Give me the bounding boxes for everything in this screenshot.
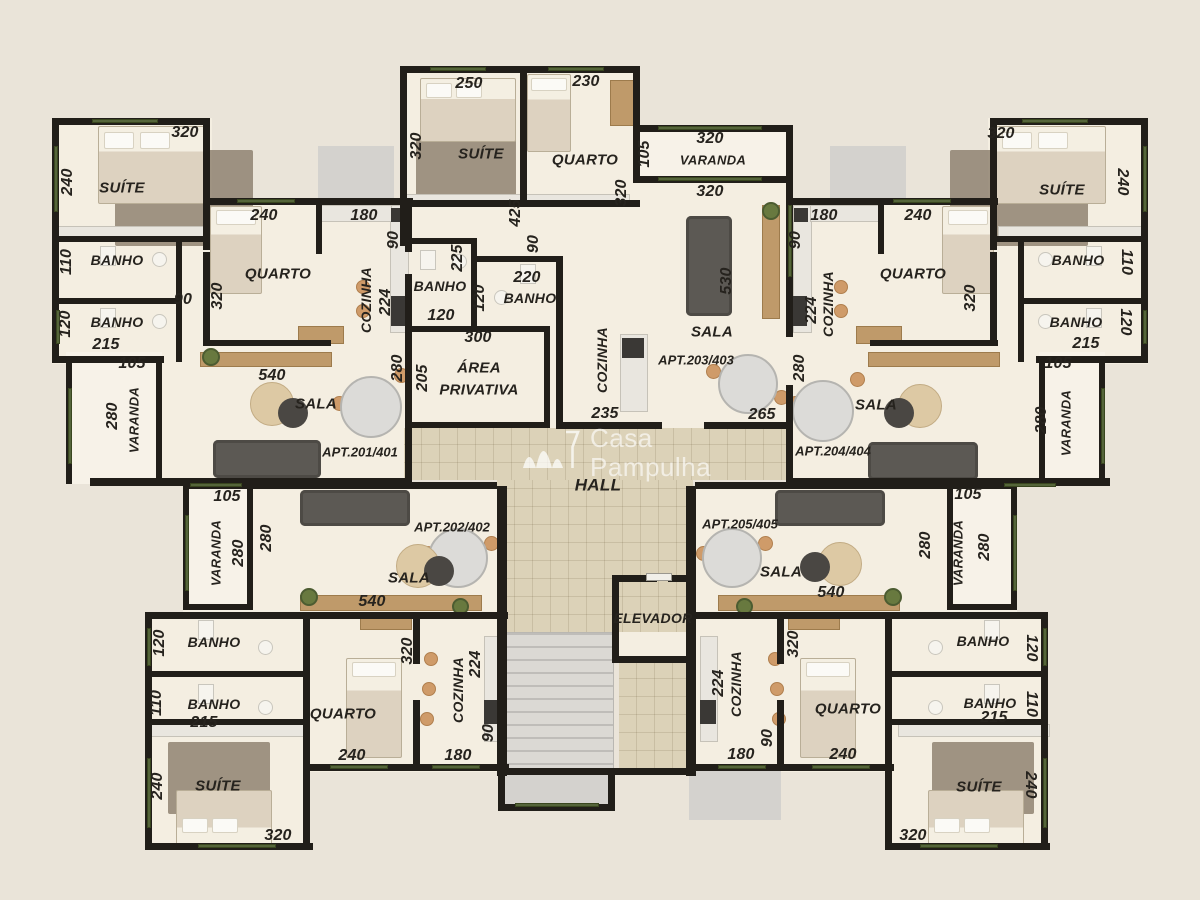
- dimension-label: 320: [614, 179, 630, 206]
- floor-plan-canvas: 320240SUÍTEBANHO110BANHO12021510590VARAN…: [0, 0, 1200, 900]
- shelf: [610, 80, 634, 126]
- dimension-label: 540: [817, 585, 844, 601]
- room-label: BANHO: [91, 253, 144, 267]
- watermark: Casa Pampulha: [522, 424, 711, 481]
- wall: [52, 298, 182, 304]
- window: [1022, 119, 1088, 123]
- dimension-label: 110: [1118, 249, 1134, 275]
- dimension-label: 110: [59, 249, 75, 275]
- pillow: [934, 818, 960, 833]
- room-label: VARANDA: [210, 520, 223, 586]
- dimension-label: 320: [987, 126, 1014, 142]
- wall: [690, 612, 890, 619]
- pillow: [352, 662, 396, 677]
- dimension-label: 280: [259, 524, 275, 551]
- room-label: SUÍTE: [195, 779, 241, 794]
- service-shaft: [830, 146, 906, 204]
- dimension-label: 180: [350, 208, 377, 224]
- pillow: [104, 132, 134, 149]
- dimension-label: 320: [400, 637, 416, 664]
- dimension-label: 280: [231, 539, 247, 566]
- dimension-label: 240: [338, 748, 365, 764]
- dimension-label: 120: [427, 308, 454, 324]
- dimension-label: 240: [904, 208, 931, 224]
- room-label: BANHO: [188, 697, 241, 711]
- dimension-label: 105: [954, 487, 981, 503]
- fix c: [928, 640, 943, 655]
- window: [548, 67, 604, 71]
- dimension-label: 105: [1044, 356, 1071, 372]
- dimension-label: 90: [788, 231, 804, 249]
- dimension-label: 240: [1022, 771, 1038, 798]
- watermark-logo-icon: [522, 426, 580, 479]
- dimension-label: 300: [464, 330, 491, 346]
- room-label: COZINHA: [729, 651, 743, 717]
- window: [658, 177, 762, 181]
- wall: [1018, 242, 1024, 362]
- service-shaft: [318, 146, 394, 204]
- sofa: [300, 490, 410, 526]
- wall: [890, 671, 1048, 677]
- apartment-label: APT.204/404: [795, 445, 871, 458]
- window: [190, 483, 242, 487]
- dimension-label: 120: [1117, 308, 1133, 335]
- room-label: SALA: [760, 565, 802, 580]
- dimension-label: 215: [92, 337, 119, 353]
- dimension-label: 90: [174, 292, 192, 308]
- pillow: [182, 818, 208, 833]
- room-label: BANHO: [964, 696, 1017, 710]
- room-label: BANHO: [504, 291, 557, 305]
- wall: [145, 612, 307, 619]
- dimension-label: 240: [150, 772, 166, 799]
- wall: [477, 256, 562, 262]
- window: [718, 765, 766, 769]
- room-label: SALA: [388, 571, 430, 586]
- dimension-label: 180: [810, 208, 837, 224]
- room-label: BANHO: [1052, 253, 1105, 267]
- sofa: [213, 440, 321, 478]
- room-label: SUÍTE: [458, 147, 504, 162]
- dimension-label: 235: [591, 406, 618, 422]
- fix c: [928, 700, 943, 715]
- bath-fixture: [420, 250, 436, 270]
- dimension-label: 90: [481, 724, 497, 742]
- wall: [786, 385, 793, 486]
- dimension-label: 240: [1114, 168, 1130, 195]
- dining-table: [702, 528, 762, 588]
- staircase: [502, 632, 614, 770]
- room-label: PRIVATIVA: [439, 383, 518, 398]
- dimension-label: 240: [250, 208, 277, 224]
- dimension-label: 320: [264, 828, 291, 844]
- dining-table: [340, 376, 402, 438]
- room-label: SUÍTE: [99, 181, 145, 196]
- dimension-label: 265: [748, 407, 775, 423]
- service-shaft: [505, 775, 608, 806]
- hall-floor: [619, 663, 686, 768]
- watermark-line1: Casa: [590, 423, 653, 453]
- wall: [413, 700, 420, 771]
- room-label: QUARTO: [310, 707, 376, 722]
- fix c: [258, 640, 273, 655]
- sofa: [686, 216, 732, 316]
- room-label: QUARTO: [880, 267, 946, 282]
- dimension-label: 120: [472, 284, 488, 311]
- dimension-label: 540: [358, 594, 385, 610]
- dimension-label: 105: [637, 140, 653, 167]
- dimension-label: 90: [526, 235, 542, 253]
- room-label: SALA: [691, 325, 733, 340]
- window: [515, 803, 599, 807]
- wall: [156, 363, 162, 484]
- window: [92, 119, 158, 123]
- dimension-label: 90: [386, 231, 402, 249]
- dimension-label: 320: [171, 125, 198, 141]
- chair: [422, 682, 436, 696]
- wall: [303, 612, 508, 619]
- room-label: QUARTO: [245, 267, 311, 282]
- dimension-label: 205: [415, 364, 431, 391]
- dimension-label: 320: [696, 131, 723, 147]
- dimension-label: 224: [378, 288, 394, 315]
- wall: [203, 340, 331, 346]
- shelf: [762, 205, 780, 319]
- counter: [150, 724, 304, 737]
- room-label: SUÍTE: [1039, 183, 1085, 198]
- window: [198, 844, 276, 848]
- chair: [770, 682, 784, 696]
- wall: [612, 656, 693, 663]
- room-label: VARANDA: [128, 387, 141, 453]
- apartment-label: APT.202/402: [414, 521, 490, 534]
- window: [1004, 483, 1056, 487]
- dimension-label: 280: [1034, 406, 1050, 433]
- wall: [544, 332, 550, 428]
- wall: [407, 238, 477, 244]
- room-label: VARANDA: [952, 520, 965, 586]
- window: [920, 844, 998, 848]
- apartment-label: APT.201/401: [322, 446, 398, 459]
- pillow: [1038, 132, 1068, 149]
- dimension-label: 280: [105, 402, 121, 429]
- wall: [405, 274, 412, 486]
- window: [330, 765, 388, 769]
- watermark-line2: Pampulha: [590, 452, 711, 482]
- dimension-label: 110: [1023, 691, 1039, 717]
- wall: [890, 612, 1048, 619]
- coffee-table: [800, 552, 830, 582]
- wall: [786, 198, 998, 205]
- window: [237, 199, 295, 203]
- wall: [992, 236, 1148, 242]
- watermark-text: Casa Pampulha: [590, 424, 711, 481]
- wall: [777, 616, 784, 664]
- window: [54, 146, 58, 212]
- room-label: BANHO: [188, 635, 241, 649]
- dimension-label: 120: [152, 629, 168, 656]
- appliance: [622, 338, 644, 358]
- dimension-label: 215: [1072, 336, 1099, 352]
- wall: [686, 486, 696, 776]
- sofa: [775, 490, 885, 526]
- wall: [1018, 298, 1148, 304]
- apartment-label: APT.205/405: [702, 518, 778, 531]
- room-label: ÁREA: [457, 361, 501, 376]
- dimension-label: 250: [455, 76, 482, 92]
- room-label: COZINHA: [359, 267, 373, 333]
- wall: [990, 252, 997, 346]
- wall: [890, 719, 1048, 725]
- dimension-label: 280: [977, 533, 993, 560]
- dimension-label: 225: [450, 244, 466, 271]
- wall: [316, 198, 322, 254]
- pillow: [948, 210, 988, 225]
- dimension-label: 224: [711, 669, 727, 696]
- wall: [520, 66, 527, 206]
- wall: [52, 356, 164, 363]
- room-label: VARANDA: [1060, 390, 1073, 456]
- room-label: BANHO: [957, 634, 1010, 648]
- dimension-label: 540: [258, 368, 285, 384]
- plant: [300, 588, 318, 606]
- dimension-label: 105: [118, 356, 145, 372]
- dimension-label: 215: [980, 710, 1007, 726]
- chair: [850, 372, 865, 387]
- room-label: BANHO: [91, 315, 144, 329]
- dimension-label: 110: [149, 690, 165, 716]
- room-label: QUARTO: [552, 153, 618, 168]
- apartment-label: APT.203/403: [658, 354, 734, 367]
- chair: [420, 712, 434, 726]
- wall: [247, 489, 253, 610]
- dimension-label: 280: [792, 354, 808, 381]
- window: [1143, 146, 1147, 212]
- window: [1101, 388, 1105, 464]
- wall: [704, 422, 792, 429]
- wall: [878, 198, 884, 254]
- dimension-label: 180: [444, 748, 471, 764]
- room-label: COZINHA: [595, 327, 609, 393]
- dimension-label: 320: [696, 184, 723, 200]
- window: [68, 388, 72, 464]
- window: [1013, 515, 1017, 591]
- dining-table: [792, 380, 854, 442]
- dimension-label: 224: [468, 650, 484, 677]
- pillow: [426, 83, 452, 98]
- dimension-label: 320: [899, 828, 926, 844]
- wall: [870, 340, 998, 346]
- window: [1143, 310, 1147, 344]
- dimension-label: 240: [60, 168, 76, 195]
- dimension-label: 530: [719, 267, 735, 294]
- dimension-label: 320: [786, 630, 802, 657]
- appliance: [794, 208, 808, 222]
- dimension-label: 240: [829, 747, 856, 763]
- plant: [202, 348, 220, 366]
- chair: [834, 280, 848, 294]
- window: [432, 765, 480, 769]
- fix c: [152, 314, 167, 329]
- floor: [303, 612, 508, 772]
- room-label: BANHO: [1050, 315, 1103, 329]
- chair: [834, 304, 848, 318]
- wall: [556, 256, 563, 428]
- wall: [183, 604, 253, 610]
- dimension-label: 120: [58, 310, 74, 337]
- room-label: SUÍTE: [956, 780, 1002, 795]
- room-label: QUARTO: [815, 702, 881, 717]
- window: [1043, 758, 1047, 828]
- room-label: ELEVADOR: [613, 611, 692, 625]
- fix c: [258, 700, 273, 715]
- wall: [777, 700, 784, 771]
- counter: [898, 724, 1050, 737]
- pillow: [212, 818, 238, 833]
- dimension-label: 425: [508, 199, 524, 226]
- plant: [884, 588, 902, 606]
- elevator-door: [646, 573, 672, 581]
- plant: [762, 202, 780, 220]
- pillow: [531, 78, 567, 91]
- dimension-label: 280: [390, 354, 406, 381]
- pillow: [806, 662, 850, 677]
- room-label: VARANDA: [680, 154, 746, 167]
- wall: [145, 671, 305, 677]
- room-label: BANHO: [414, 279, 467, 293]
- pillow: [964, 818, 990, 833]
- appliance: [700, 700, 716, 724]
- window: [893, 199, 951, 203]
- wall: [497, 768, 693, 775]
- dimension-label: 215: [190, 715, 217, 731]
- service-shaft: [689, 770, 781, 820]
- wall: [203, 198, 413, 205]
- wall: [52, 236, 208, 242]
- pillow: [140, 132, 170, 149]
- shelf: [868, 352, 1000, 367]
- dimension-label: 224: [804, 296, 820, 323]
- window: [812, 765, 870, 769]
- chair: [424, 652, 438, 666]
- dimension-label: 230: [572, 74, 599, 90]
- sofa: [868, 442, 978, 480]
- window: [430, 67, 486, 71]
- dimension-label: 320: [963, 284, 979, 311]
- room-label: COZINHA: [451, 657, 465, 723]
- dimension-label: 90: [760, 729, 776, 747]
- dimension-label: 120: [1023, 634, 1039, 661]
- window: [185, 515, 189, 591]
- dimension-label: 320: [210, 282, 226, 309]
- wall: [145, 719, 305, 725]
- dimension-label: 180: [727, 747, 754, 763]
- dimension-label: 105: [213, 489, 240, 505]
- wall: [497, 486, 507, 776]
- dimension-label: 220: [513, 270, 540, 286]
- wall: [400, 66, 407, 212]
- room-label: SALA: [855, 398, 897, 413]
- window: [1043, 628, 1047, 666]
- room-label: SALA: [295, 397, 337, 412]
- wall: [203, 118, 210, 250]
- wall: [947, 604, 1017, 610]
- dimension-label: 320: [409, 132, 425, 159]
- wall: [303, 612, 310, 850]
- fix c: [152, 252, 167, 267]
- wall: [885, 612, 892, 850]
- dimension-label: 280: [918, 531, 934, 558]
- room-label: COZINHA: [821, 271, 835, 337]
